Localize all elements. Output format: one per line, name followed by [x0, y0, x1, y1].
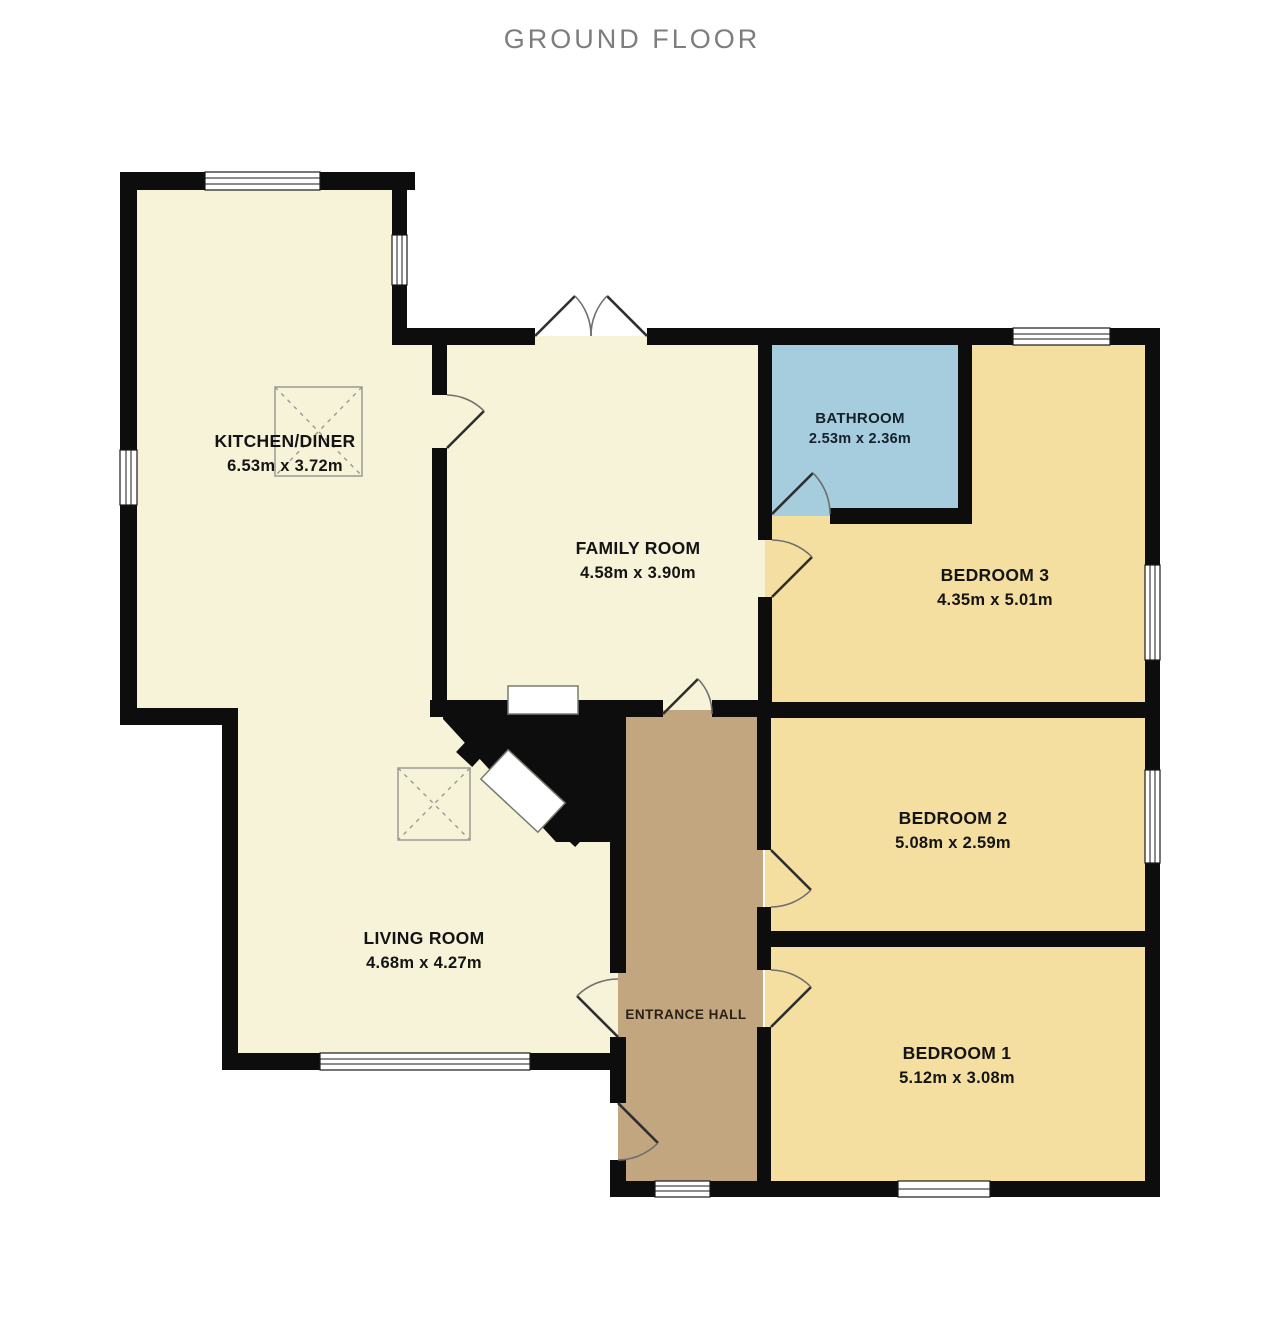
label-bedroom2-name: BEDROOM 2	[899, 808, 1008, 828]
window-bedroom3-right	[1145, 565, 1160, 660]
label-bathroom-dims: 2.53m x 2.36m	[809, 431, 911, 447]
window-kitchen-right	[392, 235, 407, 285]
french-door-threshold	[535, 336, 647, 346]
room-entrance-hall-floor	[618, 710, 763, 1189]
label-kitchen-dims: 6.53m x 3.72m	[227, 457, 343, 475]
label-bedroom1-name: BEDROOM 1	[903, 1043, 1012, 1063]
page-title: GROUND FLOOR	[504, 24, 761, 54]
floorplan-page: GROUND FLOOR	[0, 0, 1280, 1319]
window-kitchen-top	[205, 172, 320, 190]
window-bedroom3-top	[1013, 328, 1110, 345]
label-bedroom3-name: BEDROOM 3	[941, 565, 1050, 585]
floorplan-canvas: GROUND FLOOR	[0, 0, 1280, 1319]
window-bedroom1-bottom	[898, 1181, 990, 1197]
label-bedroom2-dims: 5.08m x 2.59m	[895, 834, 1011, 852]
window-kitchen-left	[120, 450, 137, 505]
window-living-bottom	[320, 1053, 530, 1070]
fireplace-family	[508, 686, 578, 714]
window-bedroom2-right	[1145, 770, 1160, 863]
label-bedroom3-dims: 4.35m x 5.01m	[937, 591, 1053, 609]
room-bedroom1-floor	[765, 939, 1152, 1189]
label-hall-name: ENTRANCE HALL	[625, 1007, 746, 1022]
label-living-name: LIVING ROOM	[364, 928, 485, 948]
label-family-dims: 4.58m x 3.90m	[580, 564, 696, 582]
label-living-dims: 4.68m x 4.27m	[366, 954, 482, 972]
label-family-name: FAMILY ROOM	[576, 538, 701, 558]
label-kitchen-name: KITCHEN/DINER	[215, 431, 356, 451]
label-bedroom1-dims: 5.12m x 3.08m	[899, 1069, 1015, 1087]
window-hall-bottom	[655, 1181, 710, 1197]
label-bathroom-name: BATHROOM	[815, 410, 905, 427]
